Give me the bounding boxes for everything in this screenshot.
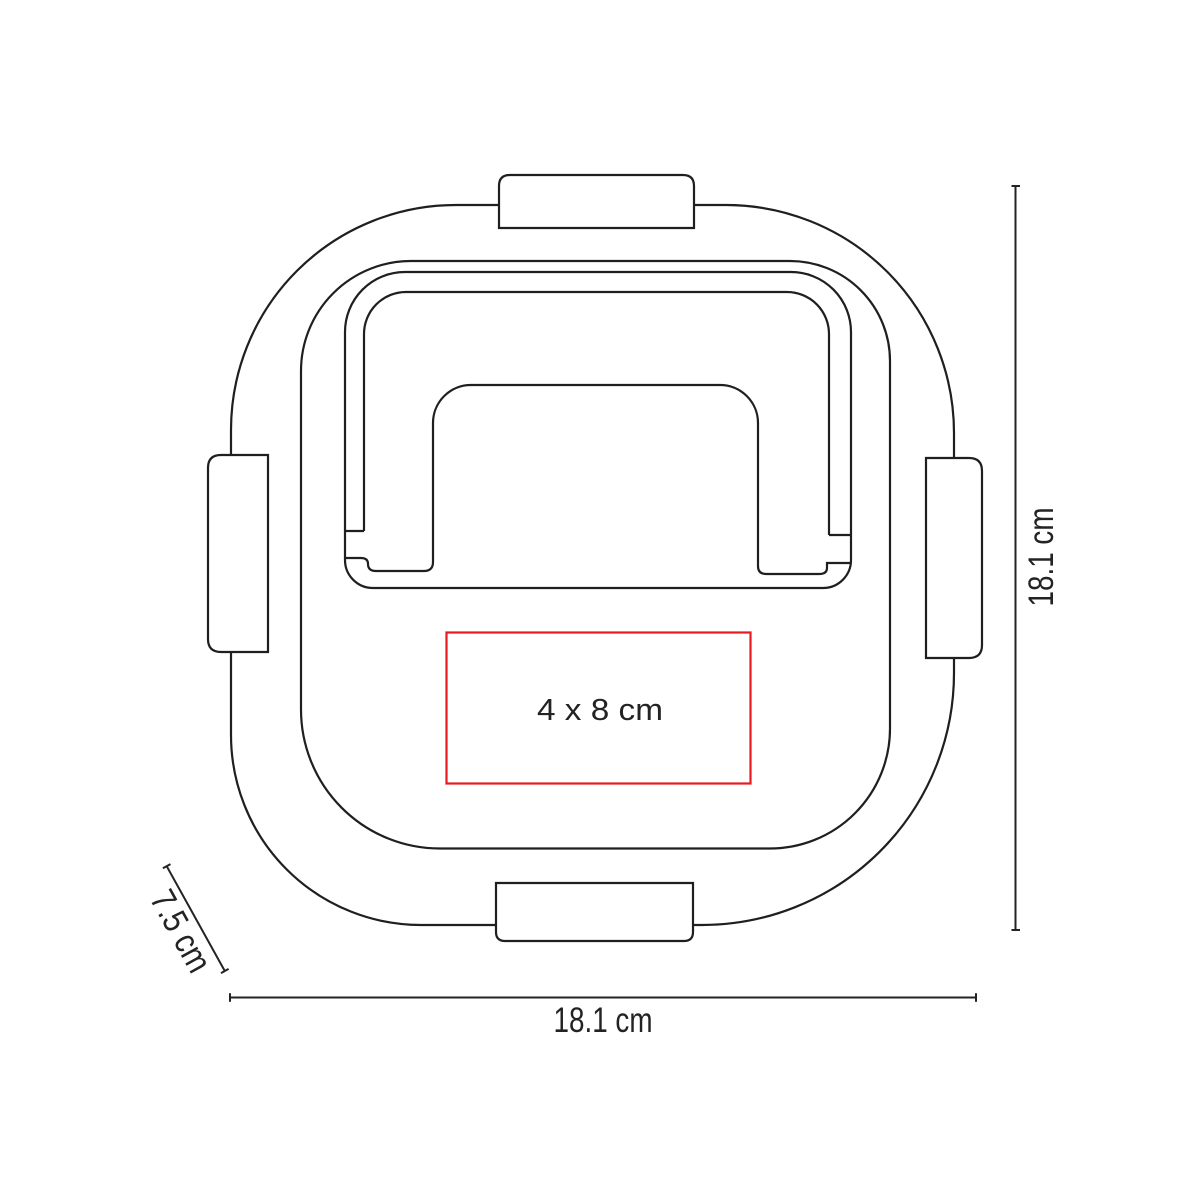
svg-text:18.1 cm: 18.1 cm: [554, 1001, 653, 1040]
svg-text:18.1 cm: 18.1 cm: [1022, 508, 1061, 607]
svg-text:4 x 8 cm: 4 x 8 cm: [537, 692, 663, 727]
